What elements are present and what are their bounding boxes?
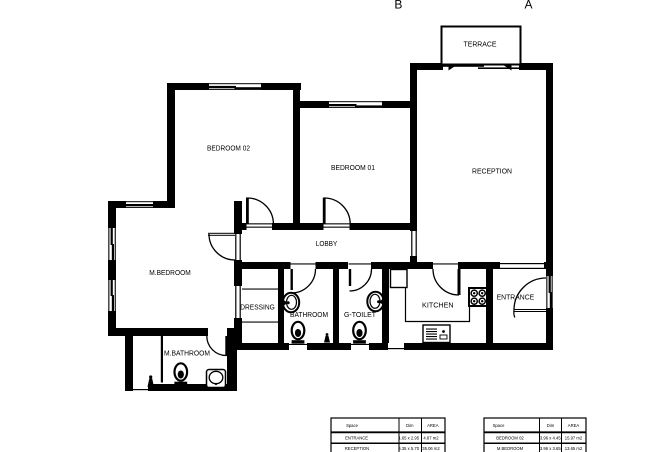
svg-text:1.65 x 2.95: 1.65 x 2.95 <box>398 436 419 441</box>
svg-text:B: B <box>394 0 402 12</box>
svg-text:M.BEDROOM: M.BEDROOM <box>497 446 524 451</box>
svg-text:35.06 m2: 35.06 m2 <box>422 446 440 451</box>
svg-text:3.96 x 3.65: 3.96 x 3.65 <box>540 446 561 451</box>
svg-text:BATHROOM: BATHROOM <box>290 310 328 319</box>
svg-text:BEDROOM 02: BEDROOM 02 <box>207 144 250 153</box>
svg-text:15.97 m2: 15.97 m2 <box>565 436 583 441</box>
svg-text:Space: Space <box>346 423 359 428</box>
svg-text:KITCHEN: KITCHEN <box>422 300 454 309</box>
svg-text:RECEPTION: RECEPTION <box>472 167 512 176</box>
svg-text:Dim: Dim <box>406 423 414 428</box>
svg-text:TERRACE: TERRACE <box>464 40 497 49</box>
svg-text:4.87 m2: 4.87 m2 <box>423 436 439 441</box>
svg-text:Space: Space <box>493 423 506 428</box>
svg-text:LOBBY: LOBBY <box>316 239 338 248</box>
svg-text:AREA: AREA <box>427 423 439 428</box>
svg-text:13.65 m2: 13.65 m2 <box>565 446 583 451</box>
svg-text:G-TOILET: G-TOILET <box>344 310 376 319</box>
svg-text:M.BEDROOM: M.BEDROOM <box>149 268 191 277</box>
svg-text:DRESSING: DRESSING <box>240 303 275 312</box>
svg-text:6.35 x 5.70: 6.35 x 5.70 <box>398 446 419 451</box>
svg-text:A: A <box>524 0 532 12</box>
svg-text:AREA: AREA <box>568 423 580 428</box>
svg-text:BEDROOM 01: BEDROOM 01 <box>331 163 375 172</box>
svg-text:ENTRANCE: ENTRANCE <box>497 293 535 302</box>
svg-text:RECEPTION: RECEPTION <box>345 446 369 451</box>
svg-text:Dim: Dim <box>547 423 555 428</box>
svg-text:3.96 x 4.45: 3.96 x 4.45 <box>540 436 561 441</box>
svg-text:M.BATHROOM: M.BATHROOM <box>164 348 210 357</box>
svg-text:BEDROOM 02: BEDROOM 02 <box>496 436 524 441</box>
svg-text:ENTRANCE: ENTRANCE <box>345 436 368 441</box>
